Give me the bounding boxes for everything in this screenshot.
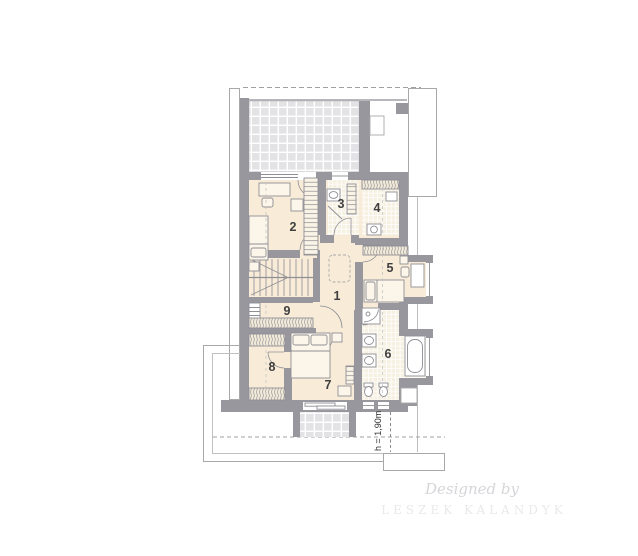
washbasin-bowl [329,192,338,199]
room-label-5: 5 [387,261,394,275]
wardrobe-top [249,334,285,346]
balcony-tiles [300,412,349,437]
wall-ne-tab [396,103,408,114]
room-label-2: 2 [290,220,297,234]
nightstand [249,262,259,271]
height-annotation: h = 1,90m [373,411,383,451]
wall-stairs-corridor [248,297,313,303]
radiator [386,192,397,201]
wall-room7-bath [354,310,362,402]
se-roof-inset [401,388,417,403]
sink-1-bowl [365,337,374,345]
floor-plan-page: 1 2 3 4 5 6 7 8 9 h = 1,90m Designed by … [0,0,638,556]
lower-roof-outline [384,454,445,471]
bidet-bowl [380,387,388,397]
chair [262,198,273,207]
side-table [291,199,303,211]
wardrobe-bottom [249,388,285,400]
room2-terrace-window-gap [261,172,298,180]
room-label-6: 6 [385,347,392,361]
balcony-wall-right [349,412,356,437]
balcony-door-panel-2 [317,406,345,409]
bathtub-basin [408,340,423,373]
left-eave-outline [230,89,240,400]
wall-left [240,98,249,402]
terrace [241,100,407,172]
pillow [366,282,375,300]
floor-plan-canvas: 1 2 3 4 5 6 7 8 9 h = 1,90m Designed by … [0,0,638,556]
wall-right-mid [399,297,408,336]
room-label-3: 3 [338,197,345,211]
wall-room2-room3 [318,172,326,235]
desk [411,264,424,287]
cabinet [338,386,351,396]
towel-radiator [347,184,356,214]
watermark-name: LESZEK KALANDYK [381,503,567,517]
wardrobe [363,246,408,255]
balcony-wall-left [293,412,300,437]
wardrobe-rail [362,180,399,189]
pillow [251,248,266,257]
room-label-9: 9 [284,304,291,318]
sink-2-bowl [365,357,374,365]
toilet-bowl [365,387,373,397]
room3-door-gap [334,235,351,243]
chair [401,267,409,277]
pillow-2 [311,335,327,345]
watermark: Designed by LESZEK KALANDYK [381,480,567,517]
terrace-tiles [249,101,359,172]
room-label-8: 8 [269,360,276,374]
room-label-1: 1 [334,289,341,303]
washing-machine [367,224,381,235]
room-label-4: 4 [374,201,381,215]
wardrobe [249,318,313,328]
room-label-7: 7 [325,378,332,392]
radiator [346,366,354,384]
pillow-1 [293,335,309,345]
bay5-wall-bottom [408,297,431,304]
room5-door-gap [355,245,363,262]
right-eave-outline [409,89,437,197]
wardrobe [304,178,318,255]
watermark-script: Designed by [424,480,520,498]
side-table [400,256,408,264]
wall-terrace-right [359,101,370,178]
desk [259,183,290,196]
terrace-notch [370,116,384,135]
balcony [293,412,356,437]
nightstand [332,333,342,342]
